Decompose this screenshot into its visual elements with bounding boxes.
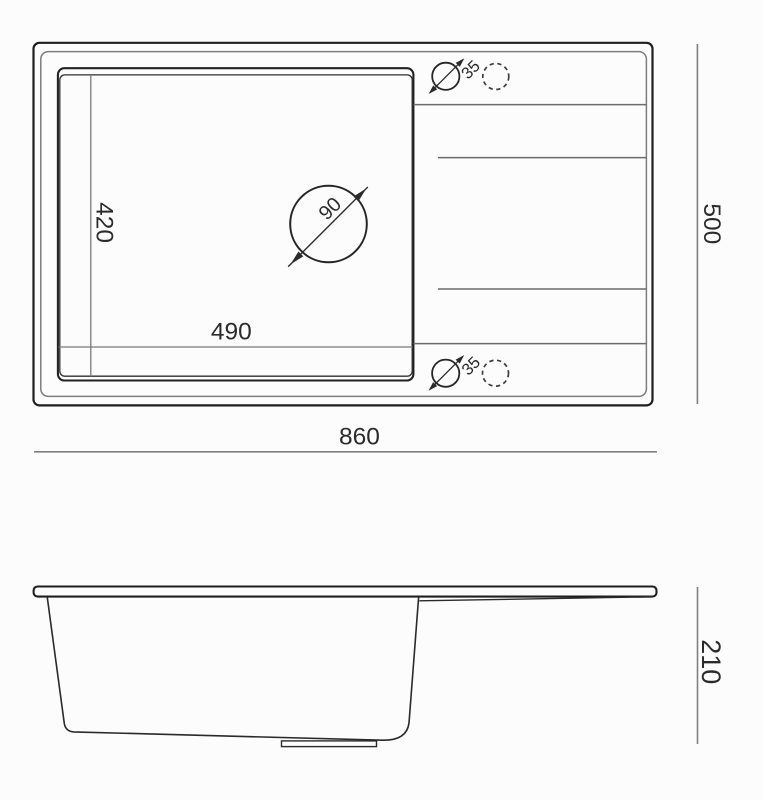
- svg-text:90: 90: [315, 193, 346, 224]
- svg-text:500: 500: [698, 203, 725, 244]
- svg-text:420: 420: [91, 202, 118, 243]
- svg-text:490: 490: [211, 319, 252, 346]
- svg-text:860: 860: [339, 423, 380, 450]
- svg-text:210: 210: [696, 639, 726, 684]
